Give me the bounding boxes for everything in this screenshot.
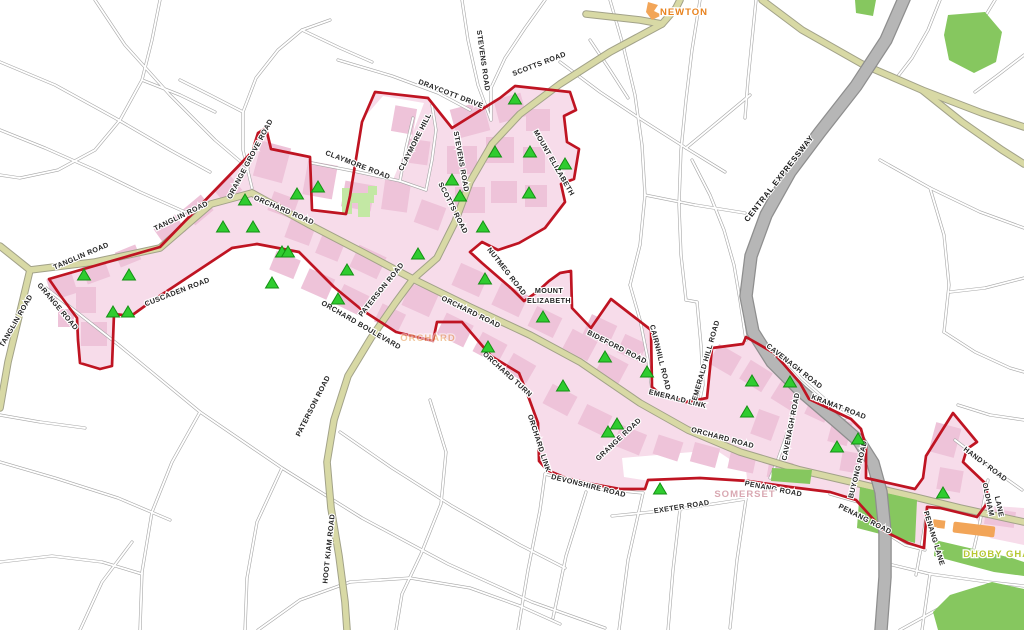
map-canvas: TANGLIN ROADTANGLIN ROADTANGLIN ROADGRAN… <box>0 0 1024 630</box>
station-label: DHOBY GHAUT <box>963 549 1024 560</box>
building-footprint <box>76 287 96 313</box>
road-label: CENTRAL EXPRESSWAY <box>742 133 815 223</box>
road-label: PATERSON ROAD <box>294 374 333 438</box>
building-footprint <box>491 181 517 203</box>
poi-marker[interactable] <box>654 483 667 494</box>
building-footprint <box>526 109 550 131</box>
building-footprint <box>523 147 545 173</box>
street-map: TANGLIN ROADTANGLIN ROADTANGLIN ROADGRAN… <box>0 0 1024 630</box>
road-label: EXETER ROAD <box>653 498 710 516</box>
road-label: ELIZABETH <box>527 296 571 305</box>
road-label: MOUNT <box>535 286 564 295</box>
building-footprint <box>936 467 963 493</box>
road-label: SCOTTS ROAD <box>511 49 567 78</box>
station-label: ORCHARD <box>400 333 456 344</box>
station-label: SOMERSET <box>714 489 775 500</box>
station-label: NEWTON <box>660 7 708 18</box>
poi-marker[interactable] <box>266 277 279 288</box>
expressway <box>746 0 907 630</box>
road-label: TANGLIN ROAD <box>0 293 35 349</box>
